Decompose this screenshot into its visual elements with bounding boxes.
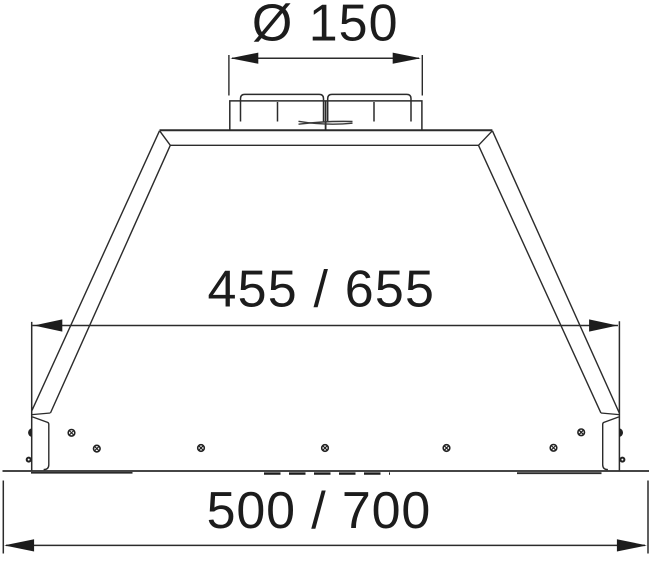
svg-text:Ø 150: Ø 150 (252, 0, 399, 53)
svg-text:500 / 700: 500 / 700 (207, 482, 432, 540)
svg-text:455 / 655: 455 / 655 (207, 261, 435, 319)
